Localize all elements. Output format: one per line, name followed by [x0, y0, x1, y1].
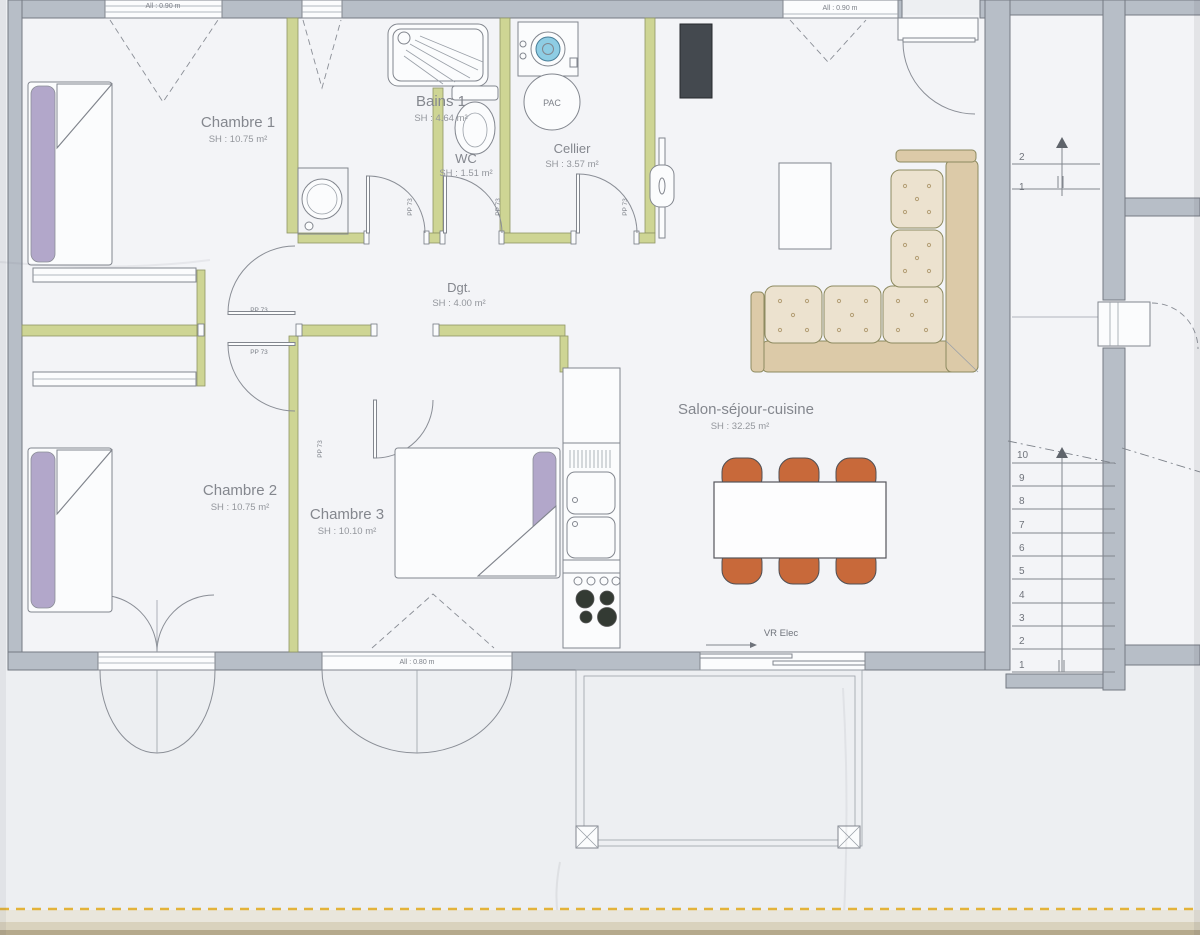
- dining-table: [714, 482, 886, 558]
- room-name-chambre1: Chambre 1: [201, 114, 275, 131]
- room-area-dgt: SH : 4.00 m²: [432, 298, 485, 309]
- stair-step-label: 2: [1019, 636, 1025, 647]
- room-name-chambre2: Chambre 2: [203, 482, 277, 499]
- door-ref-bains: PP 73: [407, 198, 414, 216]
- shutter-swings-outside: [100, 670, 512, 753]
- bed-chambre3: [395, 448, 560, 578]
- door-ref-cellier: PP 73: [622, 198, 629, 216]
- room-area-bains1: SH : 4.64 m²: [414, 113, 467, 124]
- roller-shutter-label: VR Elec: [764, 628, 799, 639]
- room-area-chambre2: SH : 10.75 m²: [211, 502, 270, 513]
- side-table: [779, 163, 831, 249]
- door-ref-wc: PP 73: [495, 198, 502, 216]
- terrace: [576, 670, 862, 848]
- scanned-floor-plan: PAC: [0, 0, 1200, 935]
- room-area-chambre3: SH : 10.10 m²: [318, 526, 377, 537]
- floor-plan-drawing: PAC: [0, 0, 1200, 935]
- heat-pump: PAC: [524, 74, 580, 130]
- washing-machine: [518, 22, 578, 76]
- stair-step-label: 5: [1019, 566, 1025, 577]
- stair-step-label: 2: [1019, 152, 1025, 163]
- heat-pump-label: PAC: [543, 98, 561, 108]
- door-ref-chambre2: PP 73: [250, 349, 268, 356]
- stair-step-label: 6: [1019, 543, 1025, 554]
- door-ref-chambre1: PP 73: [250, 307, 268, 314]
- sill-label-window-chambre3: All : 0.80 m: [399, 659, 434, 666]
- kitchen-counter: [563, 368, 620, 648]
- room-area-salon: SH : 32.25 m²: [711, 421, 770, 432]
- stair-step-label: 4: [1019, 590, 1025, 601]
- room-name-cellier: Cellier: [554, 141, 592, 156]
- room-area-chambre1: SH : 10.75 m²: [209, 134, 268, 145]
- room-name-salon: Salon-séjour-cuisine: [678, 401, 814, 418]
- door-ref-chambre3: PP 73: [317, 440, 324, 458]
- sill-label-window-chambre1: All : 0.90 m: [145, 3, 180, 10]
- room-name-dgt: Dgt.: [447, 280, 471, 295]
- room-name-chambre3: Chambre 3: [310, 506, 384, 523]
- stair-step-label: 8: [1019, 496, 1025, 507]
- door-opening-chambre2: [98, 652, 215, 670]
- terrace-post: [838, 826, 860, 848]
- stair-step-label: 9: [1019, 473, 1025, 484]
- room-area-cellier: SH : 3.57 m²: [545, 159, 598, 170]
- stair-step-label: 1: [1019, 182, 1025, 193]
- tall-cabinet: [680, 24, 712, 98]
- terrace-post: [576, 826, 598, 848]
- room-name-wc: WC: [455, 151, 477, 166]
- dining-set: [714, 458, 886, 584]
- shower: [388, 24, 488, 86]
- sill-label-window-salon: All : 0.90 m: [822, 5, 857, 12]
- stair-step-label: 3: [1019, 613, 1025, 624]
- stair-step-label: 10: [1017, 450, 1029, 461]
- room-area-wc: SH : 1.51 m²: [439, 168, 492, 179]
- bed-chambre2: [28, 448, 112, 612]
- stair-step-label: 7: [1019, 520, 1025, 531]
- room-name-bains1: Bains 1: [416, 93, 466, 110]
- bed-chambre1: [28, 82, 112, 265]
- stair-step-label: 1: [1019, 660, 1025, 671]
